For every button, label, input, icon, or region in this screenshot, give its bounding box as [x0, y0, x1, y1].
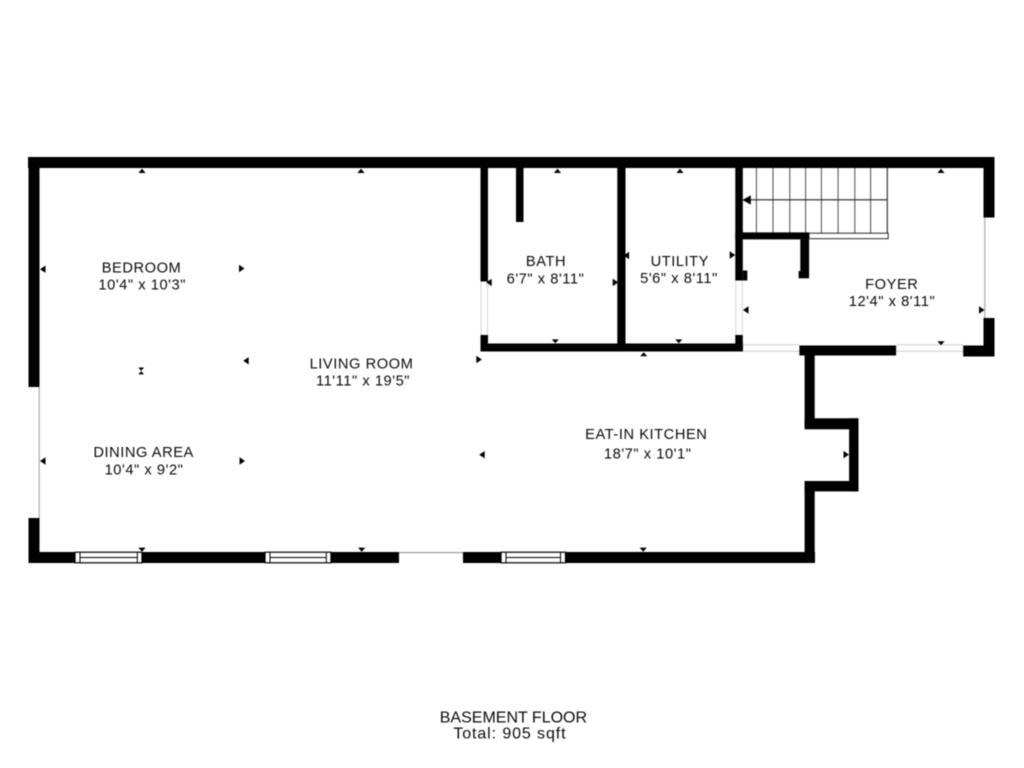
svg-text:BATH: BATH: [526, 254, 566, 270]
svg-text:FOYER: FOYER: [865, 277, 918, 293]
svg-text:12'4" x 8'11": 12'4" x 8'11": [849, 294, 935, 310]
svg-text:6'7" x 8'11": 6'7" x 8'11": [507, 271, 585, 287]
svg-text:10'4" x 9'2": 10'4" x 9'2": [105, 463, 184, 479]
svg-text:Total: 905 sqft: Total: 905 sqft: [453, 726, 566, 743]
svg-text:10'4" x 10'3": 10'4" x 10'3": [98, 278, 186, 294]
svg-text:BASEMENT FLOOR: BASEMENT FLOOR: [440, 710, 587, 727]
svg-text:LIVING ROOM: LIVING ROOM: [310, 357, 414, 373]
svg-text:18'7" x 10'1": 18'7" x 10'1": [604, 446, 692, 462]
svg-text:11'11" x 19'5": 11'11" x 19'5": [316, 373, 410, 389]
svg-text:EAT-IN KITCHEN: EAT-IN KITCHEN: [585, 427, 707, 443]
svg-text:UTILITY: UTILITY: [651, 254, 709, 270]
svg-text:5'6" x 8'11": 5'6" x 8'11": [640, 271, 718, 287]
svg-text:BEDROOM: BEDROOM: [102, 260, 182, 276]
svg-text:DINING AREA: DINING AREA: [93, 445, 194, 461]
